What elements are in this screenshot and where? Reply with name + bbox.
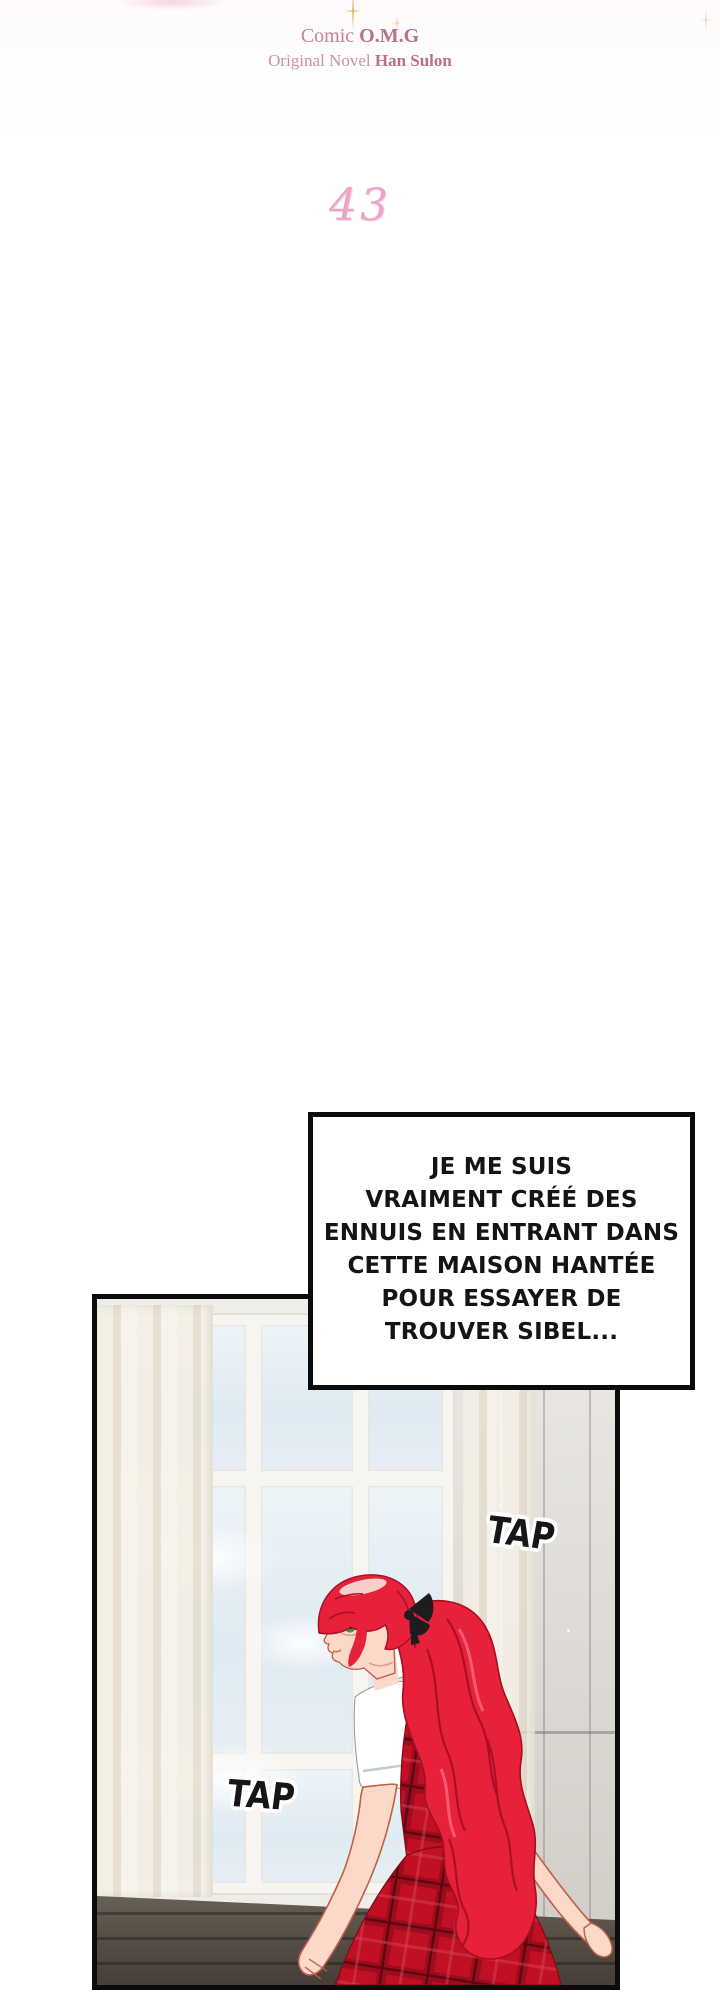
pink-watercolor-blob [118, 0, 228, 10]
speech-line: CETTE MAISON HANTÉE [319, 1250, 684, 1283]
speech-line: VRAIMENT CRÉÉ DES [319, 1184, 684, 1217]
credit-comic-author: O.M.G [359, 25, 419, 47]
comic-panel [92, 1294, 620, 1990]
credit-comic-line: Comic O.M.G [0, 24, 720, 49]
chapter-number: 43 [0, 182, 720, 230]
credit-novel-author: Han Sulon [375, 51, 452, 70]
character-illustration [97, 1299, 615, 1985]
speech-bubble: JE ME SUIS VRAIMENT CRÉÉ DES ENNUIS EN E… [308, 1112, 695, 1390]
comic-page: Comic O.M.G Original Novel Han Sulon 43 … [0, 0, 720, 2000]
speech-line: JE ME SUIS [319, 1151, 684, 1184]
speech-line: POUR ESSAYER DE [319, 1283, 684, 1316]
sfx-tap-lower: TAP [225, 1772, 298, 1819]
panel-artwork [97, 1299, 615, 1985]
speech-bubble-text: JE ME SUIS VRAIMENT CRÉÉ DES ENNUIS EN E… [313, 1117, 690, 1349]
credit-novel-line: Original Novel Han Sulon [0, 49, 720, 72]
speech-line: TROUVER SIBEL... [319, 1316, 684, 1349]
credits-block: Comic O.M.G Original Novel Han Sulon [0, 24, 720, 72]
sfx-tap-upper: TAP [484, 1508, 558, 1559]
credit-novel-prefix: Original Novel [268, 51, 375, 70]
speech-line: ENNUIS EN ENTRANT DANS [319, 1217, 684, 1250]
credit-comic-prefix: Comic [301, 25, 359, 47]
